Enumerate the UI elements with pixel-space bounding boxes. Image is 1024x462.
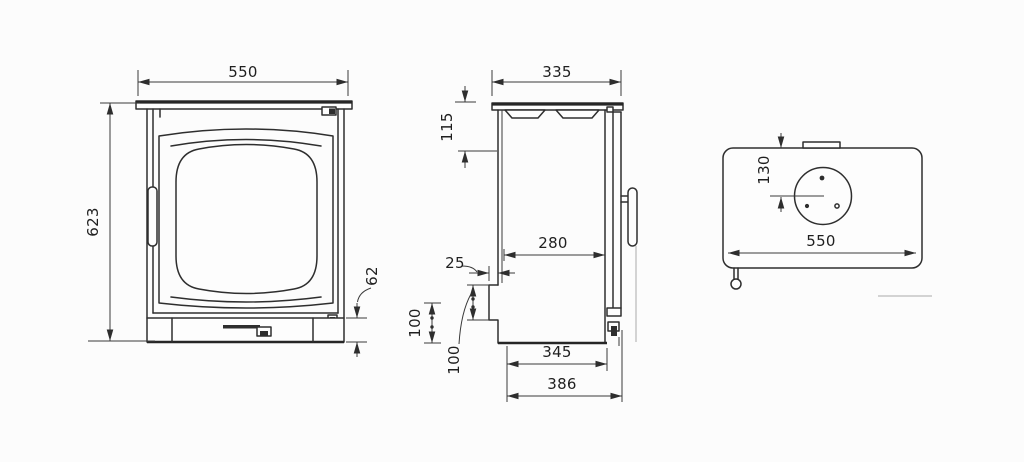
top-vent-notch-rear (505, 110, 545, 118)
side-view: 335 115 280 25 (406, 63, 637, 402)
dim-label-side-depth: 335 (542, 63, 572, 81)
base-plinth (147, 318, 344, 342)
door-handle-front (148, 187, 157, 246)
stove-technical-drawing: 550 623 62 (0, 0, 1024, 462)
dim-label-top-offset: 115 (438, 112, 456, 142)
dim-label-rear-offset: 25 (445, 254, 465, 272)
door-latch-top (322, 107, 336, 115)
dim-label-rear-height-upper: 100 (406, 308, 424, 338)
top-vent-notch-front (556, 110, 599, 118)
front-view: 550 623 62 (84, 63, 381, 357)
handle-knob-top (731, 268, 741, 289)
rear-flue-tab (803, 142, 840, 148)
dim-label-rear-height-lower: 100 (445, 345, 463, 375)
dim-rear-height-lower: 100 (445, 285, 490, 375)
door-moulding-inner-bottom (171, 297, 321, 302)
dim-front-height: 623 (84, 103, 155, 341)
dim-label-body-depth: 280 (538, 234, 568, 252)
dim-label-base-height: 62 (363, 266, 381, 286)
dim-base-height: 62 (346, 266, 381, 357)
drawing-canvas: 550 623 62 (0, 0, 1024, 462)
flue-bolt-hole (805, 204, 809, 208)
dim-label-overall-depth: 386 (547, 375, 577, 393)
dim-label-top-width: 550 (806, 232, 836, 250)
dim-side-depth: 335 (492, 63, 621, 96)
dim-front-width: 550 (138, 63, 348, 96)
dim-top-offset: 115 (438, 86, 497, 168)
dim-body-depth: 280 (504, 234, 605, 261)
dim-rear-height-upper: 100 (406, 303, 441, 343)
door-handle-side (621, 188, 637, 342)
dim-rear-offset: 25 (445, 254, 515, 281)
flue-bolt-hole (820, 176, 825, 181)
dim-label-flue-offset: 130 (755, 155, 773, 185)
side-door-latch (608, 322, 619, 336)
top-view: 130 550 (723, 133, 932, 296)
dim-label-front-width: 550 (228, 63, 258, 81)
side-body-outline (489, 110, 607, 343)
dim-label-front-height: 623 (84, 207, 102, 237)
dim-label-base-depth: 345 (542, 343, 572, 361)
side-door-panel (607, 107, 621, 316)
door-glass (176, 145, 317, 294)
